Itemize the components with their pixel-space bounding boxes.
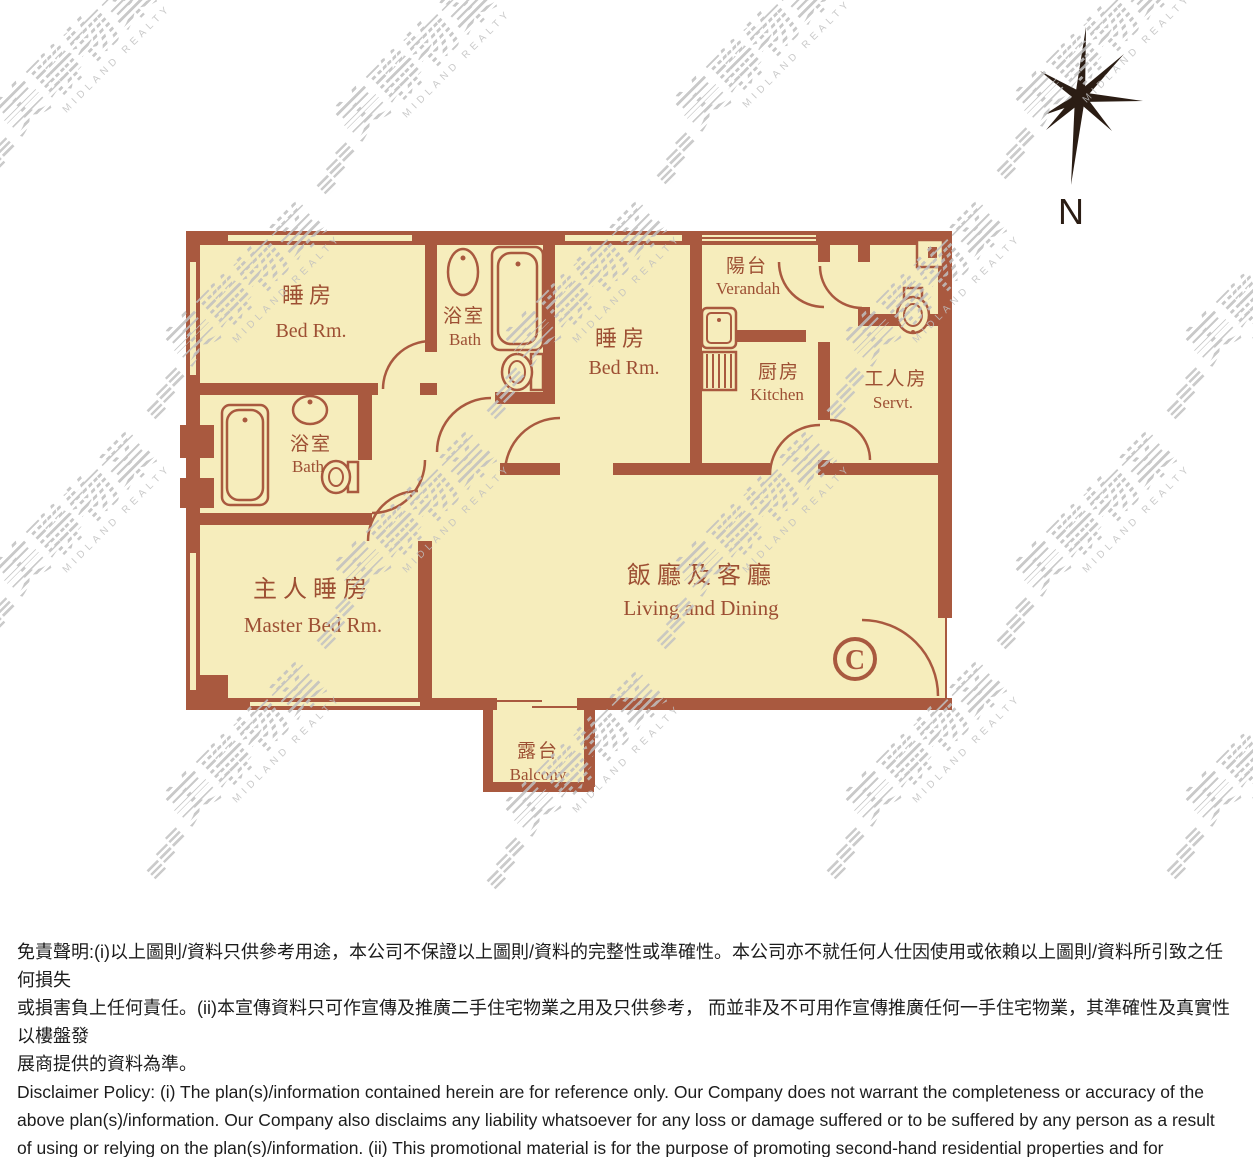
- watermark-zh: 美聯物業: [1179, 656, 1253, 831]
- watermark-zh: 美聯物業: [1009, 0, 1184, 132]
- watermark-en: MIDLAND REALTY: [492, 702, 684, 894]
- midland-logo-mark-icon: [479, 365, 528, 414]
- watermark-en: MIDLAND REALTY: [832, 232, 1024, 424]
- watermark-en: MIDLAND REALTY: [832, 692, 1024, 884]
- watermark-en: MIDLAND REALTY: [0, 462, 174, 654]
- page: 睡房 Bed Rm. 浴室 Bath 睡房 Bed Rm. 陽台 Veranda…: [0, 0, 1253, 1157]
- midland-logo-mark-icon: [139, 825, 188, 874]
- midland-logo-mark-icon: [819, 825, 868, 874]
- midland-logo-mark-icon: [309, 140, 358, 189]
- midland-logo-mark-icon: [139, 365, 188, 414]
- midland-logo-mark-icon: [819, 365, 868, 414]
- watermark: 美聯物業MIDLAND REALTY: [422, 632, 719, 929]
- watermark-zh: 美聯物業: [159, 656, 334, 831]
- watermark-en: MIDLAND REALTY: [1002, 462, 1194, 654]
- watermark-zh: 美聯物業: [1009, 426, 1184, 601]
- watermark-zh: 美聯物業: [839, 656, 1014, 831]
- watermark-en: MIDLAND REALTY: [152, 232, 344, 424]
- watermark-en: MIDLAND REALTY: [0, 2, 174, 194]
- midland-logo-mark-icon: [1159, 365, 1208, 414]
- disclaimer-zh-line: 免責聲明:(i)以上圖則/資料只供參考用途，本公司不保證以上圖則/資料的完整性或…: [17, 938, 1237, 994]
- watermark-en: MIDLAND REALTY: [152, 692, 344, 884]
- watermark-zh: 美聯物業: [839, 196, 1014, 371]
- watermark: 美聯物業MIDLAND REALTY: [252, 392, 549, 689]
- midland-logo-mark-icon: [989, 125, 1038, 174]
- disclaimer-zh-line: 展商提供的資料為準。: [17, 1050, 1237, 1078]
- watermark-zh: 美聯物業: [0, 426, 164, 601]
- midland-logo-mark-icon: [309, 595, 358, 644]
- watermark-en: MIDLAND REALTY: [662, 462, 854, 654]
- disclaimer-en-line: above plan(s)/information. Our Company a…: [17, 1106, 1237, 1134]
- midland-logo-mark-icon: [989, 595, 1038, 644]
- watermark-zh: 美聯物業: [499, 196, 674, 371]
- disclaimer-en-line: of using or relying on the plan(s)/infor…: [17, 1134, 1237, 1157]
- watermark: 美聯物業MIDLAND REALTY: [932, 392, 1229, 689]
- watermark-en: MIDLAND REALTY: [662, 0, 854, 189]
- watermark: 美聯物業MIDLAND REALTY: [1102, 162, 1253, 459]
- watermark: 美聯物業MIDLAND REALTY: [422, 162, 719, 459]
- watermark-zh: 美聯物業: [0, 0, 164, 142]
- watermark-zh: 美聯物業: [669, 0, 844, 137]
- midland-logo-mark-icon: [0, 135, 18, 184]
- watermark-en: MIDLAND REALTY: [1172, 692, 1253, 884]
- watermark-zh: 美聯物業: [499, 666, 674, 841]
- watermark-zh: 美聯物業: [329, 0, 504, 147]
- watermark: 美聯物業MIDLAND REALTY: [82, 622, 379, 919]
- midland-logo-mark-icon: [649, 595, 698, 644]
- midland-logo-mark-icon: [0, 595, 18, 644]
- watermark: 美聯物業MIDLAND REALTY: [932, 0, 1229, 218]
- watermark: 美聯物業MIDLAND REALTY: [1102, 622, 1253, 919]
- midland-logo-mark-icon: [649, 130, 698, 179]
- watermark-en: MIDLAND REALTY: [492, 232, 684, 424]
- watermark: 美聯物業MIDLAND REALTY: [592, 0, 889, 223]
- disclaimer: 免責聲明:(i)以上圖則/資料只供參考用途，本公司不保證以上圖則/資料的完整性或…: [17, 938, 1237, 1157]
- watermark-en: MIDLAND REALTY: [322, 7, 514, 199]
- watermark-zh: 美聯物業: [159, 196, 334, 371]
- watermark-en: MIDLAND REALTY: [322, 462, 514, 654]
- watermark-en: MIDLAND REALTY: [1002, 0, 1194, 184]
- watermark: 美聯物業MIDLAND REALTY: [252, 0, 549, 233]
- watermark: 美聯物業MIDLAND REALTY: [0, 392, 208, 689]
- watermark: 美聯物業MIDLAND REALTY: [762, 622, 1059, 919]
- watermark-zh: 美聯物業: [329, 426, 504, 601]
- midland-logo-mark-icon: [479, 835, 528, 884]
- watermark-zh: 美聯物業: [1179, 196, 1253, 371]
- watermark-zh: 美聯物業: [669, 426, 844, 601]
- watermark: 美聯物業MIDLAND REALTY: [82, 162, 379, 459]
- watermark-en: MIDLAND REALTY: [1172, 232, 1253, 424]
- disclaimer-en-line: Disclaimer Policy: (i) The plan(s)/infor…: [17, 1078, 1237, 1106]
- midland-logo-mark-icon: [1159, 825, 1208, 874]
- disclaimer-zh-line: 或損害負上任何責任。(ii)本宣傳資料只可作宣傳及推廣二手住宅物業之用及只供參考…: [17, 994, 1237, 1050]
- watermark: 美聯物業MIDLAND REALTY: [0, 0, 208, 228]
- watermark: 美聯物業MIDLAND REALTY: [592, 392, 889, 689]
- watermark: 美聯物業MIDLAND REALTY: [762, 162, 1059, 459]
